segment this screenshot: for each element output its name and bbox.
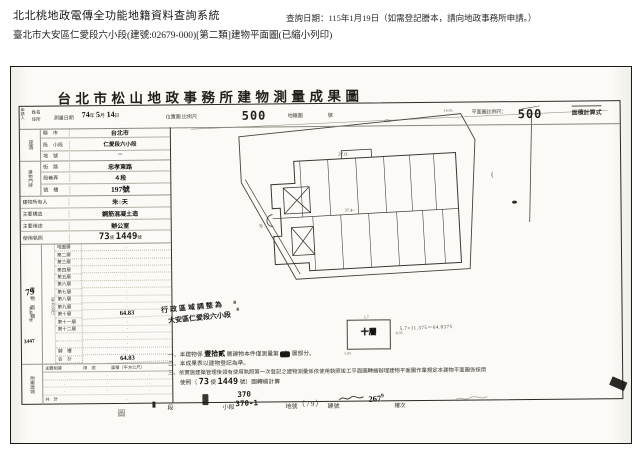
floor-values-column: · · · · · · · · · 64.83 · · · · · 64.83 xyxy=(82,243,172,363)
number-row: 號 樓 197號 xyxy=(41,183,170,196)
cadastral-map-label: 地籍圖 xyxy=(288,112,303,119)
map-char: 圖 xyxy=(117,408,125,419)
unit-dim-top: 5.7 xyxy=(364,315,369,320)
screenshot-root: { "header": { "system_title": "北北桃地政電傳全功… xyxy=(0,0,640,449)
doorplate-group-label: 建物門牌 xyxy=(20,162,41,196)
subsection-value-2: 370-1 xyxy=(235,398,258,408)
floor-labels-column: 地面層 第二層 第三層 第四層 第五層 第六層 第七層 第八層 第九層 第十層 … xyxy=(55,244,83,363)
signature-squiggle xyxy=(338,394,364,403)
subsection-field-label: 小段 xyxy=(222,402,234,411)
faint-scribble xyxy=(454,394,488,402)
land-no-value: （79） xyxy=(297,398,324,409)
measured-unit-plan: 十層 5.7 4.05 1.05 xyxy=(347,319,391,349)
survey-form-box: 470 45 xyxy=(19,100,624,405)
notes-block: 一、本建物係 壹拾貳 層建物本件僅測量第 十 層部分。 二、本成果表以建物登記為… xyxy=(168,346,616,388)
road-angle-label: 45 xyxy=(258,223,265,230)
dim-374-label: 37.4~ xyxy=(345,208,356,213)
land-no-field-label: 地號 xyxy=(285,401,297,410)
location-map-label: 位置圖 比例尺 xyxy=(166,113,197,120)
dim-37-label: 37.0 xyxy=(338,153,347,158)
location-map-scale: 500 xyxy=(242,109,267,123)
received-label: 字第 號 xyxy=(29,307,33,322)
received-number-handwriting: 79 xyxy=(25,286,36,297)
area-formula-label: 面積計算式 xyxy=(572,105,602,116)
stairwell-x-boxes xyxy=(283,187,315,256)
document-subject-line: 臺北市大安區仁愛段六小段(建號:02679-000)[第二類]建物平面圖(已縮小… xyxy=(13,27,332,41)
survey-date-label: 測量日期 xyxy=(54,114,74,121)
annex-group-label: 附屬建物 xyxy=(22,365,43,405)
section-stamp-blob xyxy=(202,394,208,405)
section-field-label: 段 xyxy=(167,402,173,411)
scanned-document-frame: 台北市松山地政事務所建物測量成果圖 470 45 xyxy=(10,66,632,444)
plan-scale-label: 平面圖比例尺： xyxy=(472,108,507,115)
building-info-table: 座落 縣 市 台北市 段 小段 仁愛段六小段 地 號 ─ 建物門牌 xyxy=(20,127,174,403)
annex-building-table: 附屬建物 主體相連 用 途 面積（平方公尺） ··· ··· ··· 共 計 xyxy=(22,363,172,404)
floor-area-table: 建物面積 （平方公尺） 地面層 第二層 第三層 第四層 第五層 第六層 第七層 … xyxy=(21,243,172,364)
floor-area-group-label: 建物面積 xyxy=(21,245,43,364)
footer-tick xyxy=(152,402,155,408)
survey-sheet-page: 台北市松山地政事務所建物測量成果圖 470 45 xyxy=(13,67,626,439)
land-no-row: 地 號 ─ xyxy=(41,150,170,161)
name-address-labels: 姓名住所 xyxy=(32,109,41,123)
ink-stamp-mark xyxy=(609,376,627,391)
floor-area-unit-label: （平方公尺） xyxy=(42,245,56,364)
plan-scale-value: 500 xyxy=(518,107,543,121)
paren-mark: ( xyxy=(491,170,494,178)
survey-date-value: 74年 5月 14日 xyxy=(82,110,120,119)
floor-seq-field-label: 樓次 xyxy=(394,401,405,409)
received-number-2-handwriting: 3447 xyxy=(24,338,35,345)
building-no-value: 2679 xyxy=(368,393,384,404)
measured-floor-label: 十層 xyxy=(348,326,390,337)
query-date: 查詢日期：115年1月19日（如需登記謄本，請向地政事務所申請。） xyxy=(286,12,536,24)
cadastral-no-label: 號 xyxy=(328,112,333,119)
seat-group-label: 座落 xyxy=(20,129,41,161)
system-title: 北北桃地政電傳全功能地籍資料查詢系統 xyxy=(13,7,220,23)
applicant-label: 申請人 xyxy=(21,108,25,128)
